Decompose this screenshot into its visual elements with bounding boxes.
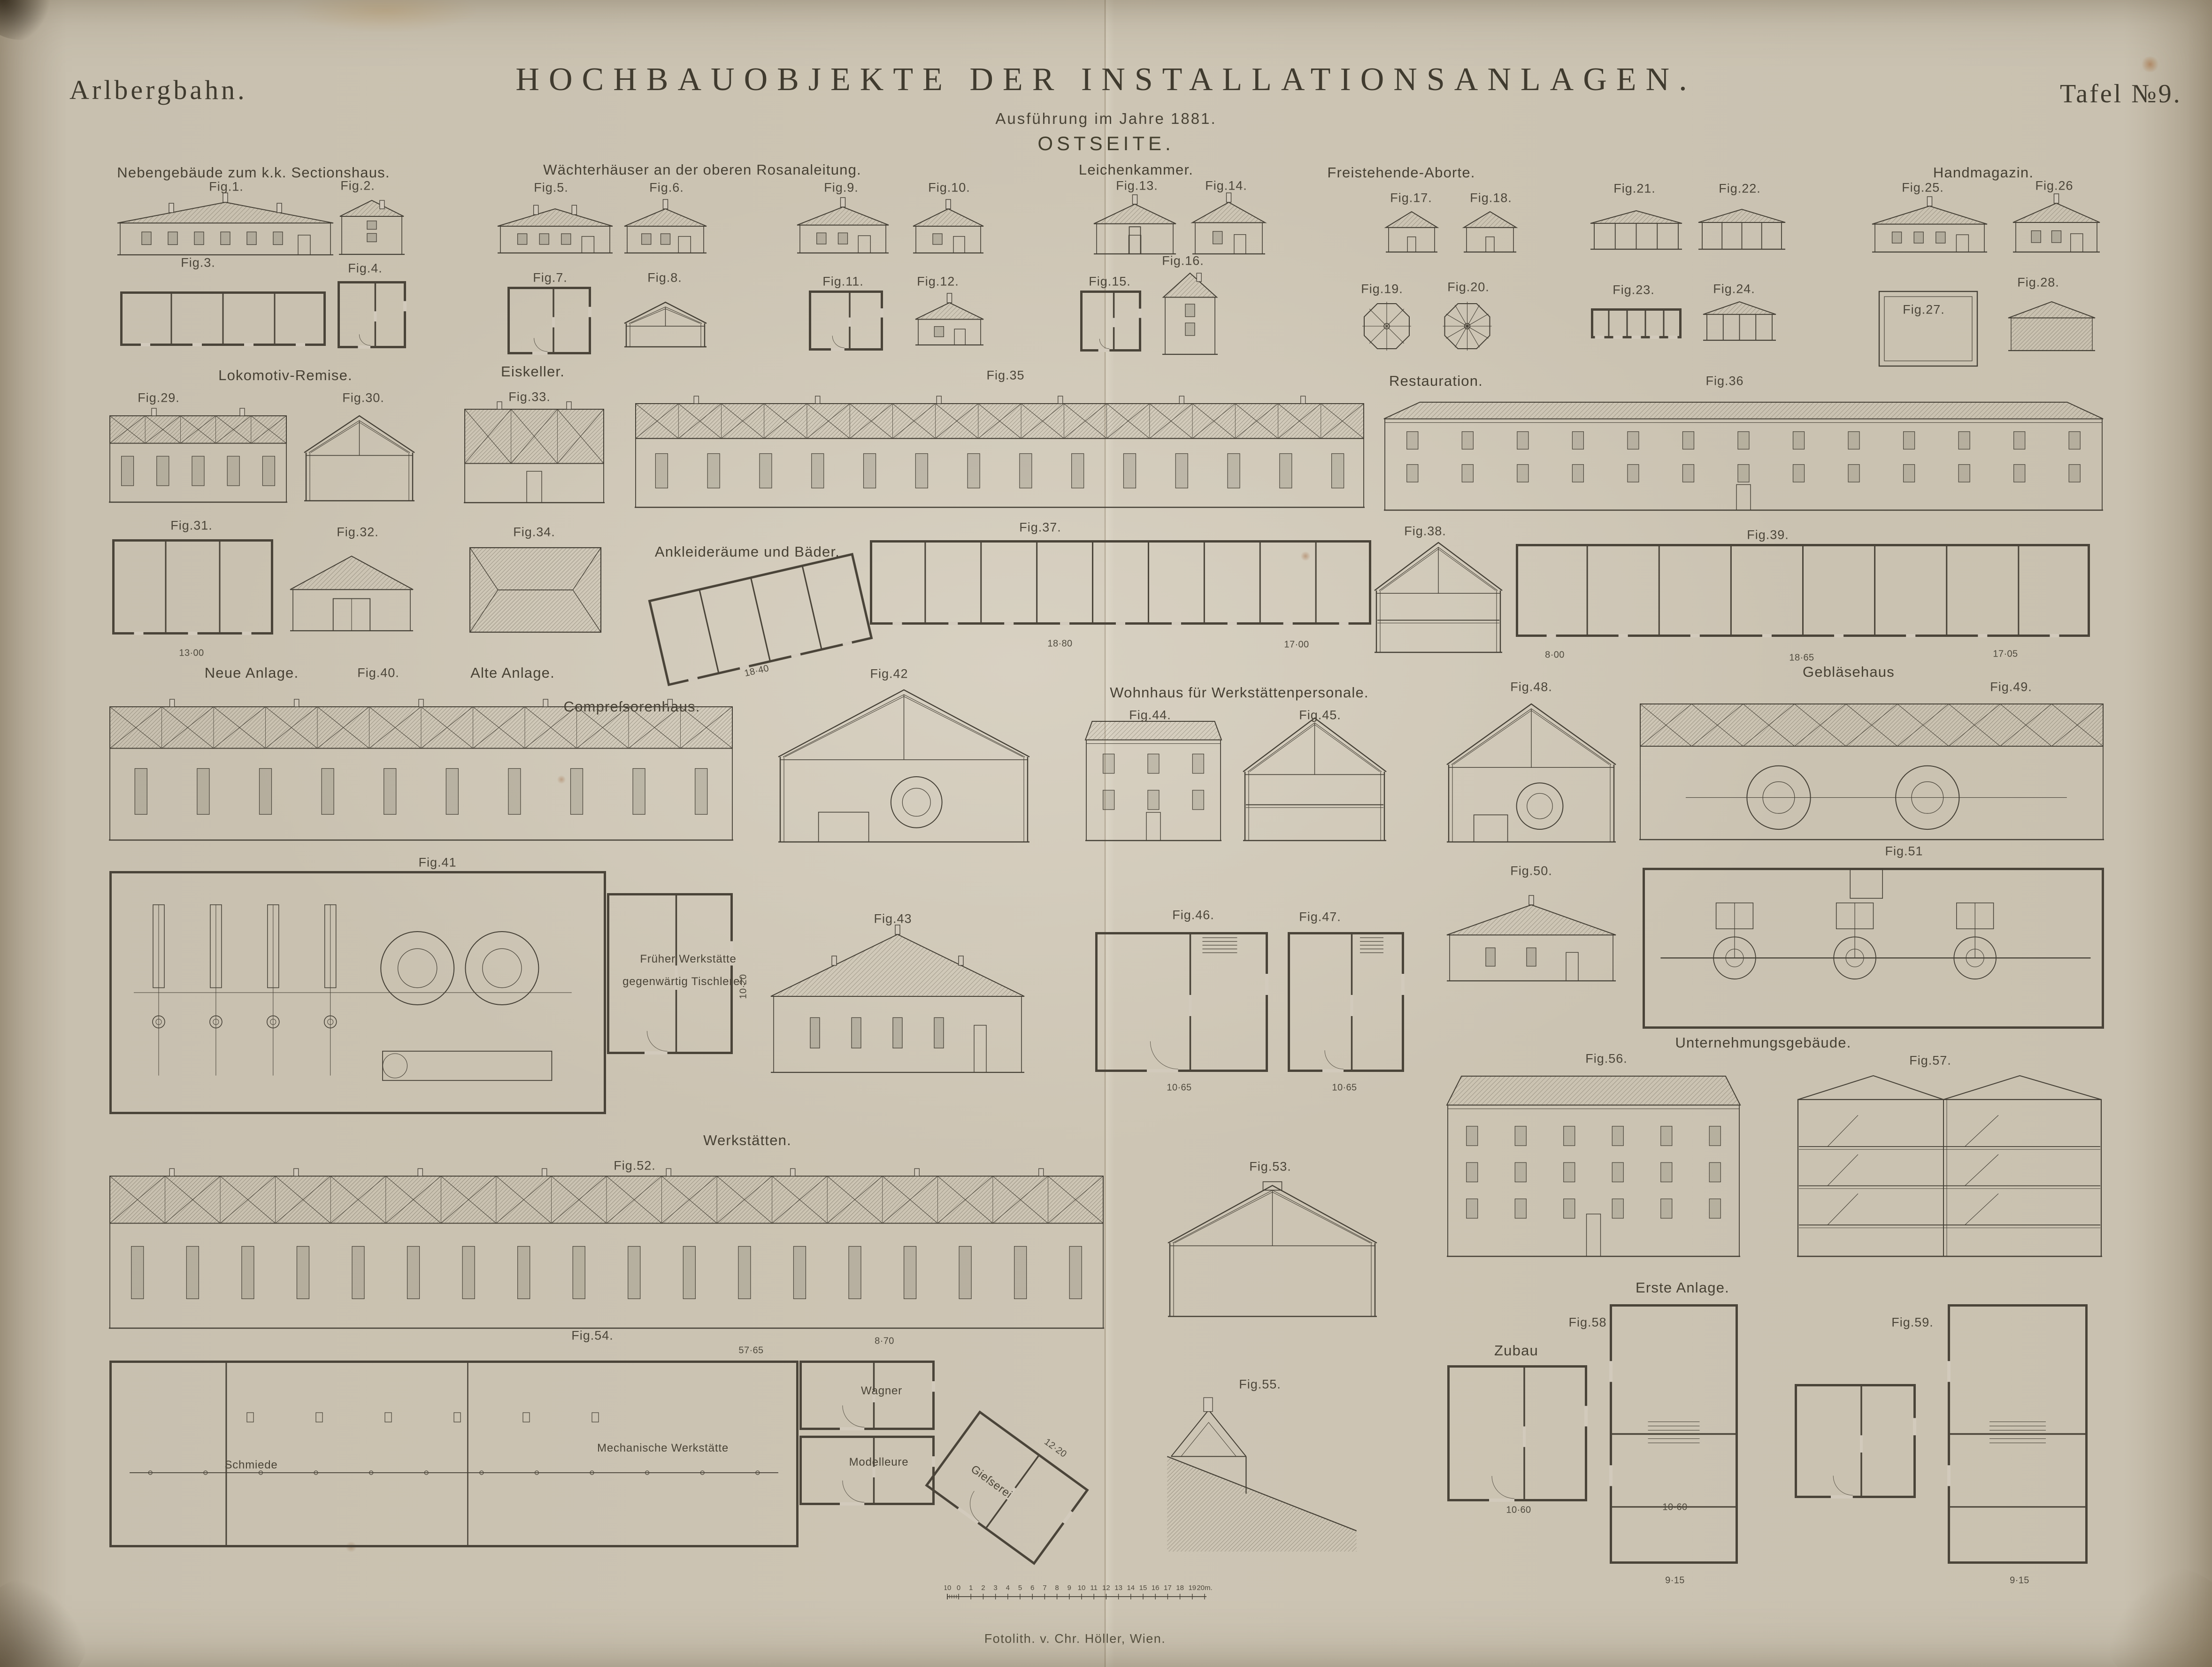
section-title-1: Wächterhäuser an der oberen Rosanaleitun… [543,161,861,178]
fig-6-drawing [624,207,707,254]
fig-46-drawing [1095,932,1268,1072]
fig-36-label: Fig.36 [1705,374,1743,389]
fig-7-drawing [507,286,591,355]
fig-33-drawing [464,405,605,504]
fig-14-drawing [1192,201,1265,255]
paper-stain [0,1577,89,1667]
fig-24-drawing [1703,300,1776,342]
fig-8-drawing [624,298,707,348]
fig-44-label: Fig.44. [1129,708,1171,723]
fig-16-label: Fig.16. [1162,254,1204,268]
fig-26-drawing [2013,202,2100,253]
scale-number: 7 [1043,1584,1046,1592]
fig-6-label: Fig.6. [649,181,684,195]
fig-52-label: Fig.52. [614,1159,656,1173]
dimension-11: 8·70 [875,1336,894,1347]
paper-stain [0,0,59,40]
fig-22-drawing [1698,208,1785,251]
section-title-13: Gebläsehaus [1803,664,1895,681]
fig-1-label: Fig.1. [209,180,244,194]
fig-19-label: Fig.19. [1361,282,1403,297]
fig-35-label: Fig.35 [986,368,1024,383]
fig-50-label: Fig.50. [1510,864,1552,879]
fig-40-drawing [109,703,733,841]
dimension-3: 17·00 [1284,640,1309,650]
header-plate-number: Tafel №9. [2060,79,2182,109]
fig-37-drawing-2 [869,540,1372,625]
fig-34-label: Fig.34. [513,525,555,540]
fig-13-drawing [1094,203,1176,255]
fig-39-label: Fig.39. [1747,528,1789,543]
fig-30-drawing [304,412,415,502]
scale-number: 3 [993,1584,997,1592]
fig-5-drawing [498,207,613,254]
fig-58-label: Fig.58 [1568,1315,1606,1330]
section-title-3: Freistehende-Aborte. [1327,164,1475,181]
dimension-16: 9·15 [2010,1575,2029,1586]
fig-46-label: Fig.46. [1172,908,1214,923]
fig-23-label: Fig.23. [1613,283,1655,298]
annotation-3: Modelleure [849,1456,909,1469]
fig-19-drawing [1360,300,1413,352]
fig-53-drawing [1168,1182,1377,1318]
fig-42-drawing [778,686,1029,843]
fig-42-label: Fig.42 [870,667,908,681]
fig-58-drawing-1 [1609,1304,1738,1564]
paper-stain [2103,1568,2212,1667]
fig-2-drawing [339,199,405,256]
fig-33-label: Fig.33. [508,390,551,405]
section-title-9: Neue Anlage. [205,665,299,681]
section-title-5: Lokomotiv-Remise. [218,367,353,384]
fig-2-label: Fig.2. [340,179,375,193]
fig-22-label: Fig.22. [1719,182,1761,196]
section-title-8: Ankleideräume und Bäder. [655,543,840,560]
fig-29-label: Fig.29. [138,391,180,405]
fig-54-drawing-3 [799,1435,935,1506]
fig-40-label: Fig.40. [357,666,399,681]
fig-45-label: Fig.45. [1299,708,1341,723]
fig-18-label: Fig.18. [1470,191,1512,206]
fig-11-drawing [808,290,883,351]
fig-52-drawing [109,1172,1104,1330]
fig-28-label: Fig.28. [2017,275,2059,290]
section-title-2: Leichenkammer. [1079,161,1193,178]
section-title-16: Erste Anlage. [1636,1279,1729,1296]
fig-45-drawing [1243,714,1386,842]
fig-17-label: Fig.17. [1390,191,1432,206]
fig-43-label: Fig.43 [874,912,912,926]
fig-55-drawing [1163,1398,1360,1552]
scale-number: 12 [1102,1584,1110,1592]
dimension-14: 10·60 [1662,1502,1687,1513]
fig-41-drawing-1 [109,871,607,1115]
fig-9-label: Fig.9. [824,181,859,195]
fig-27-drawing [1878,290,1979,367]
fig-26-label: Fig.26 [2035,179,2073,193]
fig-32-label: Fig.32. [337,525,379,540]
dimension-10: 57·65 [738,1346,763,1356]
scale-number: 6 [1030,1584,1034,1592]
scale-number: 5 [1018,1584,1022,1592]
fig-47-label: Fig.47. [1299,910,1341,925]
fig-1-drawing [117,201,333,256]
plate-sheet: Arlbergbahn. HOCHBAUOBJEKTE DER INSTALLA… [0,0,2212,1667]
fig-25-drawing [1872,205,1987,253]
fig-56-label: Fig.56. [1585,1052,1628,1066]
fig-12-label: Fig.12. [917,275,959,289]
fig-27-label: Fig.27. [1903,303,1945,317]
fig-51-label: Fig.51 [1885,844,1923,859]
section-title-15: Werkstätten. [703,1132,791,1149]
fig-56-drawing [1447,1074,1740,1258]
scale-bar: 1001234567891011121314151617181920m. [945,1583,1226,1611]
scale-number: 18 [1176,1584,1184,1592]
scale-number: 10 [945,1584,951,1592]
section-title-4: Handmagazin. [1933,164,2034,181]
page-title: HOCHBAUOBJEKTE DER INSTALLATIONSANLAGEN. [515,61,1696,99]
fig-29-drawing [109,412,287,504]
dimension-4: 8·00 [1545,650,1565,661]
fig-4-label: Fig.4. [348,261,383,276]
fig-49-drawing [1639,700,2104,841]
fig-48-label: Fig.48. [1510,680,1552,695]
fig-57-label: Fig.57. [1909,1054,1951,1068]
section-title-10: Alte Anlage. [470,665,555,681]
section-title-6: Eiskeller. [501,363,565,380]
fig-13-label: Fig.13. [1116,179,1158,193]
fig-5-label: Fig.5. [534,181,568,195]
scale-number: 17 [1164,1584,1172,1592]
dimension-15: 9·15 [1665,1575,1685,1586]
paper-stain [2141,56,2159,72]
fig-12-drawing [915,301,983,346]
fig-3-drawing [120,291,326,346]
fig-59-drawing-1 [1947,1304,2088,1564]
fig-31-label: Fig.31. [170,519,213,533]
scale-number: 8 [1055,1584,1059,1592]
fig-39-drawing [1515,543,2090,637]
fig-30-label: Fig.30. [342,391,384,405]
header-subtitle: Ausführung im Jahre 1881. [995,110,1216,128]
fig-21-drawing [1590,209,1682,251]
fig-34-drawing [469,546,602,634]
fig-32-drawing [290,555,413,632]
fig-14-label: Fig.14. [1205,179,1247,193]
scale-number: 11 [1090,1584,1098,1592]
fig-38-label: Fig.38. [1404,524,1446,539]
annotation-5: Früher Werkstätte [640,953,736,966]
fig-9-drawing [797,206,889,254]
fig-57-drawing [1797,1074,2102,1258]
scale-number: 13 [1114,1584,1122,1592]
fig-38-drawing [1375,539,1502,654]
dimension-6: 17·05 [1993,649,2018,660]
fig-58-drawing-2 [1447,1365,1588,1502]
fig-18-drawing [1464,210,1516,253]
scale-number: 9 [1068,1584,1071,1592]
paper-stain [291,0,479,33]
fig-7-label: Fig.7. [533,271,568,285]
fig-48-drawing [1447,700,1616,843]
fig-20-label: Fig.20. [1447,280,1490,295]
scale-number: 14 [1127,1584,1135,1592]
fig-54-label: Fig.54. [571,1329,614,1343]
fig-43-drawing [771,933,1024,1074]
annotation-6: gegenwärtig Tischlerei. [622,975,746,988]
scale-number: 2 [981,1584,985,1592]
dimension-9: 10·20 [738,974,749,999]
dimension-13: 10·60 [1506,1505,1531,1516]
fig-3-label: Fig.3. [181,256,215,270]
fig-53-label: Fig.53. [1249,1160,1291,1174]
fig-17-drawing [1386,210,1437,253]
scale-number: 4 [1006,1584,1010,1592]
fig-59-drawing-2 [1794,1384,1916,1499]
scale-number: 1 [969,1584,973,1592]
fig-23-drawing [1590,308,1682,339]
fig-41-label: Fig.41 [418,856,456,870]
fig-4-drawing [337,281,407,349]
section-title-14: Unternehmungsgebäude. [1675,1034,1851,1051]
fig-51-drawing [1642,867,2104,1029]
fig-49-label: Fig.49. [1990,680,2032,695]
fig-36-drawing [1384,400,2103,512]
fig-24-label: Fig.24. [1713,282,1755,297]
annotation-1: Mechanische Werkstätte [597,1442,729,1455]
fig-16-drawing [1162,272,1218,356]
header-side-label: OSTSEITE. [1037,132,1174,155]
fig-35-drawing [635,400,1365,509]
dimension-7: 10·65 [1167,1083,1191,1093]
fig-41-drawing-2 [607,893,733,1055]
fig-31-drawing [112,539,274,635]
fig-47-drawing [1287,932,1405,1072]
scale-number: 10 [1078,1584,1086,1592]
annotation-0: Schmiede [224,1459,277,1472]
dimension-12: 12·20 [1042,1437,1069,1460]
dimension-2: 18·80 [1047,639,1072,650]
dimension-5: 18·65 [1789,653,1814,664]
fig-11-label: Fig.11. [822,275,864,289]
fig-37-label: Fig.37. [1019,520,1061,535]
imprint: Fotolith. v. Chr. Höller, Wien. [984,1632,1166,1646]
annotation-2: Wagner [861,1384,902,1398]
scale-number: 15 [1139,1584,1147,1592]
dimension-8: 10·65 [1332,1083,1357,1093]
scale-number: 20m. [1197,1584,1212,1592]
fig-50-drawing [1447,903,1616,982]
scale-number: 16 [1152,1584,1160,1592]
section-title-7: Restauration. [1389,373,1483,390]
section-title-12: Wohnhaus für Werkstättenpersonale. [1110,684,1368,701]
fig-28-drawing [2008,300,2095,352]
fig-55-label: Fig.55. [1239,1377,1281,1392]
fig-21-label: Fig.21. [1613,182,1656,196]
fig-15-drawing [1080,290,1142,352]
fig-44-drawing [1085,719,1221,842]
section-title-17: Zubau [1494,1342,1538,1359]
scale-number: 0 [957,1584,960,1592]
fig-10-drawing [913,207,983,254]
fig-20-drawing [1440,300,1494,352]
fig-8-label: Fig.8. [647,271,682,285]
fig-59-label: Fig.59. [1891,1315,1934,1330]
scale-number: 19 [1188,1584,1196,1592]
header-series: Arlbergbahn. [69,74,247,106]
fig-25-label: Fig.25. [1902,181,1944,195]
dimension-0: 13·00 [179,648,204,659]
fig-15-label: Fig.15. [1089,275,1131,289]
fig-10-label: Fig.10. [928,181,970,195]
